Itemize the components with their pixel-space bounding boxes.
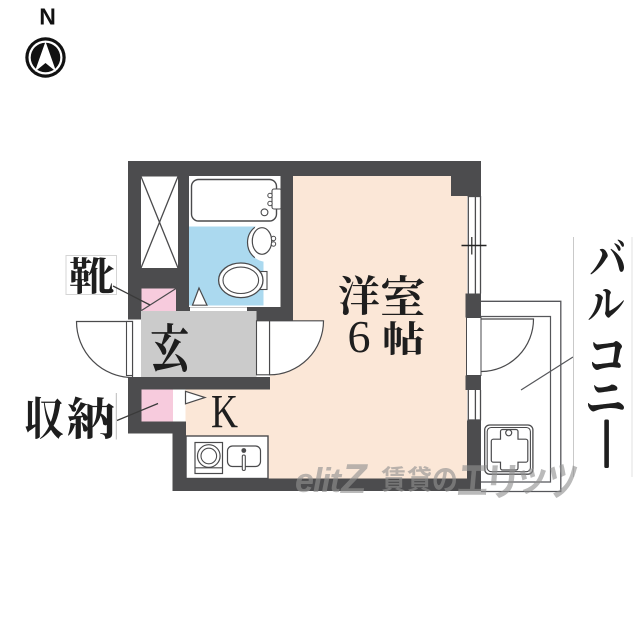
svg-text:Z: Z	[340, 455, 368, 502]
svg-text:elit: elit	[295, 462, 343, 500]
svg-text:N: N	[39, 4, 56, 30]
svg-text:6: 6	[348, 311, 371, 362]
svg-text:K: K	[211, 386, 238, 439]
